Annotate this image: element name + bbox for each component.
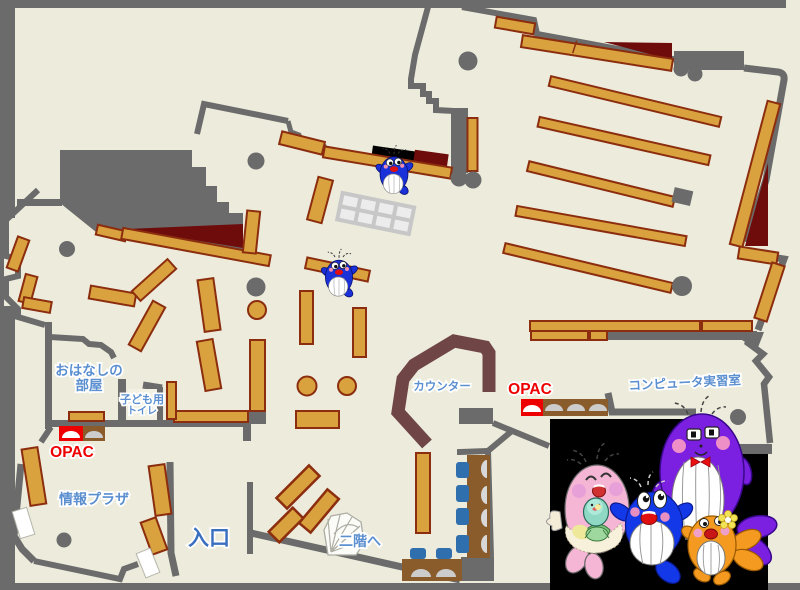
- svg-text:おはなしの: おはなしの: [55, 363, 123, 378]
- svg-text:OPAC: OPAC: [50, 444, 94, 461]
- svg-text:OPAC: OPAC: [508, 381, 552, 398]
- svg-text:情報プラザ: 情報プラザ: [59, 491, 129, 507]
- svg-text:部屋: 部屋: [76, 377, 103, 393]
- svg-text:入口: 入口: [188, 527, 230, 550]
- svg-text:二階へ: 二階へ: [339, 533, 381, 549]
- svg-text:カウンター: カウンター: [413, 379, 471, 393]
- svg-text:トイレ: トイレ: [127, 405, 157, 417]
- svg-text:子ども用: 子ども用: [120, 393, 164, 406]
